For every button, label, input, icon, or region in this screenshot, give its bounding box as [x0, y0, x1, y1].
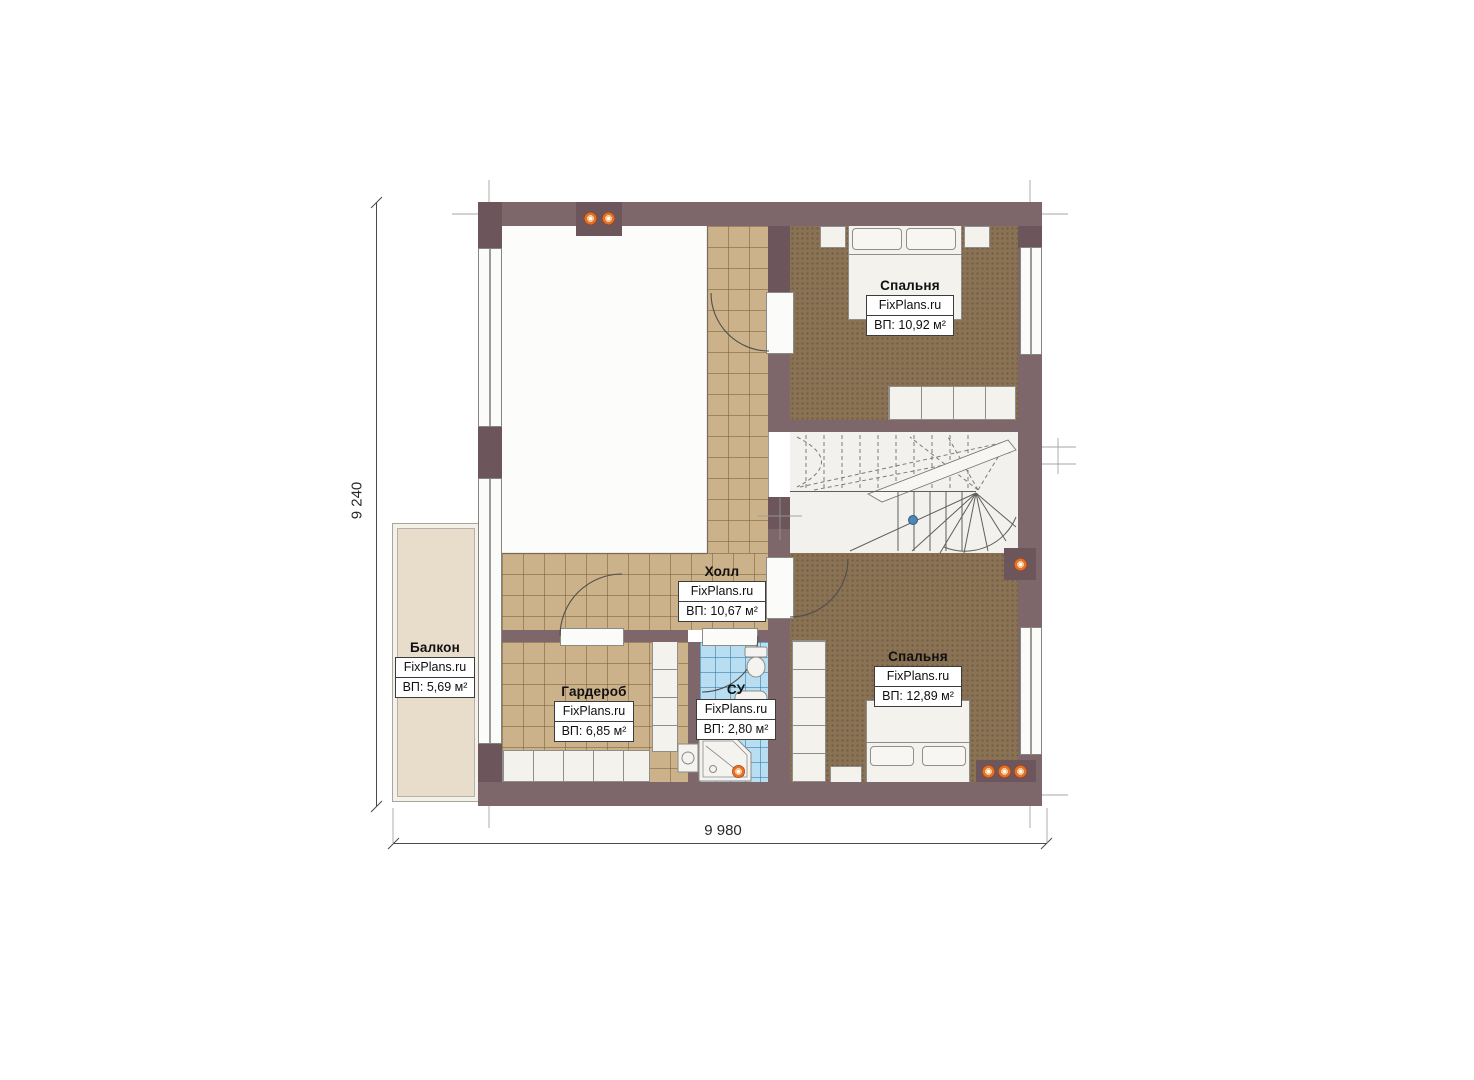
watermark: FixPlans.ru	[679, 582, 765, 602]
blanket-edge	[848, 254, 962, 255]
stair-pier	[768, 497, 790, 529]
wall-pier	[1018, 226, 1042, 248]
room-name: Спальня	[810, 278, 1010, 293]
wall-bottom	[478, 782, 1042, 806]
window-bedroom-bottom	[1020, 627, 1042, 755]
ceiling-light-icon	[602, 212, 615, 225]
room-name: Холл	[622, 564, 822, 579]
window-bedroom-top	[1020, 247, 1042, 355]
dimension-label-bottom: 9 980	[678, 822, 768, 839]
void-open-area	[502, 226, 707, 553]
wall-pier	[478, 425, 502, 478]
room-info-box: FixPlans.ru ВП: 6,85 м²	[554, 701, 635, 742]
room-info-box: FixPlans.ru ВП: 5,69 м²	[395, 657, 476, 698]
wall-top	[478, 202, 1042, 226]
ceiling-light-icon	[998, 765, 1011, 778]
ceiling-light-icon	[584, 212, 597, 225]
room-area: ВП: 10,67 м²	[679, 602, 765, 621]
wall-under-bedroom-top	[768, 420, 1042, 432]
wall-hall-wardrobe	[622, 630, 688, 642]
nightstand	[964, 226, 990, 248]
window-mullion	[489, 249, 491, 426]
pillow	[922, 746, 966, 766]
window-mullion	[1030, 248, 1032, 354]
nightstand	[820, 226, 846, 248]
ceiling-light-icon	[1014, 765, 1027, 778]
window-left	[478, 248, 502, 427]
wall-bedroom-bottom-left	[768, 529, 790, 557]
door-wardrobe	[560, 628, 624, 646]
window-mullion	[1030, 628, 1032, 754]
floor-plan-page: Спальня FixPlans.ru ВП: 10,92 м² Холл Fi…	[0, 0, 1474, 1080]
pillow	[870, 746, 914, 766]
room-area: ВП: 12,89 м²	[875, 687, 961, 706]
door-bathroom	[702, 628, 758, 646]
dimension-label-left: 9 240	[349, 464, 366, 538]
room-label-hall: Холл FixPlans.ru ВП: 10,67 м²	[622, 564, 822, 622]
room-label-balcony: Балкон FixPlans.ru ВП: 5,69 м²	[345, 640, 525, 698]
room-area: ВП: 2,80 м²	[697, 720, 776, 739]
watermark: FixPlans.ru	[555, 702, 634, 722]
room-label-bedroom-top: Спальня FixPlans.ru ВП: 10,92 м²	[810, 278, 1010, 336]
ceiling-light-icon	[1014, 558, 1027, 571]
door-bedroom-top	[766, 292, 794, 354]
ceiling-light-icon	[732, 765, 745, 778]
watermark: FixPlans.ru	[875, 667, 961, 687]
hall-floor-vertical	[707, 226, 768, 553]
room-info-box: FixPlans.ru ВП: 10,92 м²	[866, 295, 954, 336]
room-area: ВП: 5,69 м²	[396, 678, 475, 697]
room-area: ВП: 6,85 м²	[555, 722, 634, 741]
room-name: Балкон	[345, 640, 525, 655]
watermark: FixPlans.ru	[697, 700, 776, 720]
room-label-bedroom-bottom: Спальня FixPlans.ru ВП: 12,89 м²	[818, 649, 1018, 707]
stairwell-area	[790, 432, 1018, 553]
watermark: FixPlans.ru	[867, 296, 953, 316]
room-info-box: FixPlans.ru ВП: 10,67 м²	[678, 581, 766, 622]
light-box	[576, 202, 622, 236]
ceiling-light-icon	[982, 765, 995, 778]
pillow	[906, 228, 956, 250]
wall-pier	[478, 202, 502, 248]
room-area: ВП: 10,92 м²	[867, 316, 953, 335]
room-name: СУ	[652, 682, 820, 697]
watermark: FixPlans.ru	[396, 658, 475, 678]
room-info-box: FixPlans.ru ВП: 12,89 м²	[874, 666, 962, 707]
wall-pier	[478, 742, 502, 782]
closet	[502, 750, 650, 782]
closet	[888, 386, 1016, 420]
room-info-box: FixPlans.ru ВП: 2,80 м²	[696, 699, 777, 740]
pillow	[852, 228, 902, 250]
window-mullion	[489, 479, 491, 743]
room-label-bathroom: СУ FixPlans.ru ВП: 2,80 м²	[652, 682, 820, 740]
wall-hall-bedroom-top	[768, 226, 790, 292]
room-name: Спальня	[818, 649, 1018, 664]
